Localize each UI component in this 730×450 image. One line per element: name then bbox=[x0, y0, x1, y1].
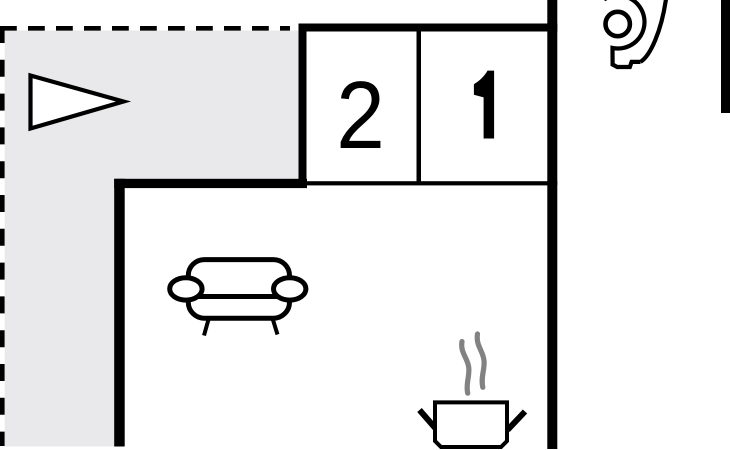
svg-text:2: 2 bbox=[336, 62, 385, 169]
